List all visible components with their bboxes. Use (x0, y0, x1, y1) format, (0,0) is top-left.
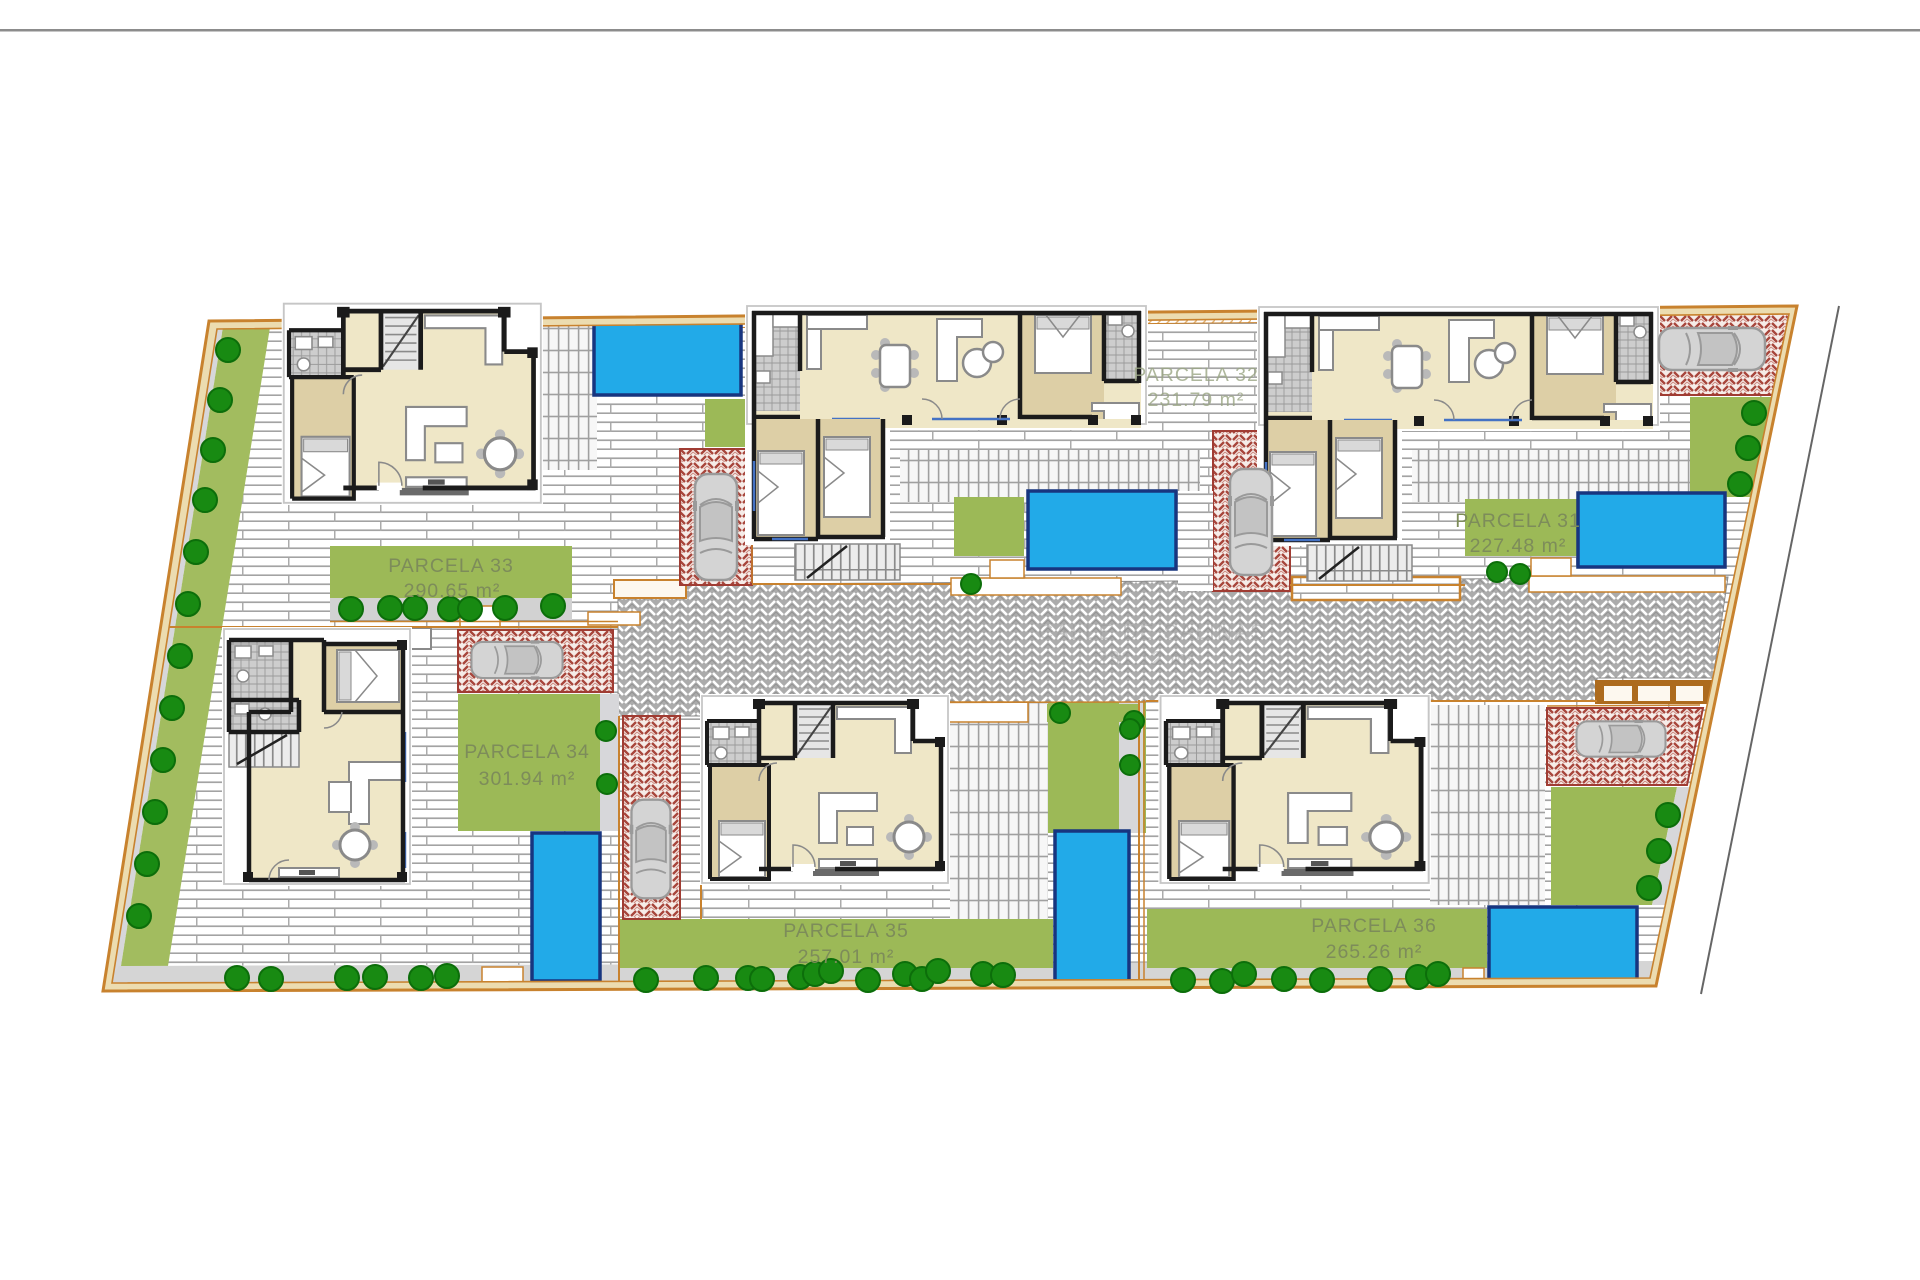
svg-text:257.01 m²: 257.01 m² (798, 946, 895, 968)
svg-text:290.65 m²: 290.65 m² (404, 580, 501, 602)
svg-text:231.79 m²: 231.79 m² (1148, 389, 1245, 411)
svg-text:231.12 m²: 231.12 m² (1096, 648, 1195, 670)
svg-text:265.26 m²: 265.26 m² (1326, 941, 1423, 963)
svg-text:PARCELA 33: PARCELA 33 (388, 555, 514, 577)
svg-text:CALLE DE SALINAS: CALLE DE SALINAS (1038, 621, 1266, 644)
svg-text:301.94 m²: 301.94 m² (479, 768, 576, 790)
svg-text:PARCELA 36: PARCELA 36 (1311, 915, 1437, 937)
svg-text:PARCELA 32: PARCELA 32 (1133, 364, 1259, 386)
svg-text:227.48 m²: 227.48 m² (1470, 535, 1567, 557)
svg-text:PARCELA 34: PARCELA 34 (464, 741, 590, 763)
svg-text:PARCELA 35: PARCELA 35 (783, 920, 909, 942)
svg-text:PARCELA 31: PARCELA 31 (1455, 510, 1581, 532)
